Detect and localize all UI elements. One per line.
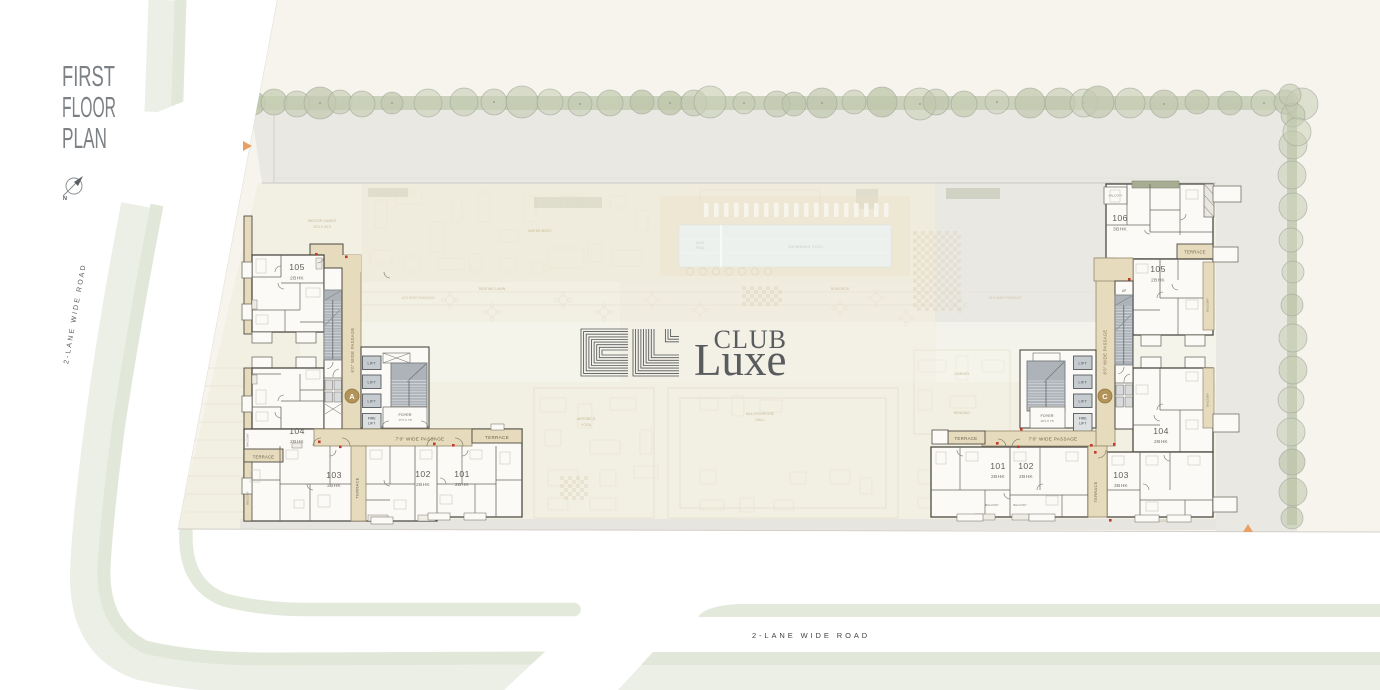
svg-text:101: 101 bbox=[454, 469, 470, 479]
svg-text:PLAN: PLAN bbox=[62, 123, 107, 155]
svg-text:10'4 X 7'8: 10'4 X 7'8 bbox=[1040, 419, 1054, 423]
svg-text:2BHK: 2BHK bbox=[455, 482, 469, 488]
svg-text:LIFT: LIFT bbox=[368, 380, 377, 384]
svg-text:BALCONY: BALCONY bbox=[246, 433, 250, 447]
svg-text:105: 105 bbox=[1150, 264, 1166, 274]
svg-text:SEATING LAWN: SEATING LAWN bbox=[479, 287, 506, 291]
svg-text:2BHK: 2BHK bbox=[290, 276, 304, 282]
svg-text:BALCONY: BALCONY bbox=[1109, 194, 1123, 198]
svg-text:101: 101 bbox=[990, 461, 1006, 471]
svg-text:WATER BODY: WATER BODY bbox=[528, 229, 552, 233]
svg-text:10'0 WIDE PASSAGE: 10'0 WIDE PASSAGE bbox=[989, 296, 1023, 300]
svg-text:INDOOR GAMES: INDOOR GAMES bbox=[308, 219, 337, 223]
svg-text:2BHK: 2BHK bbox=[1151, 278, 1165, 284]
svg-text:8'0" WIDE PASSAGE: 8'0" WIDE PASSAGE bbox=[1103, 329, 1108, 374]
svg-text:TERRACE: TERRACE bbox=[954, 436, 977, 441]
svg-text:FOYER: FOYER bbox=[398, 413, 411, 417]
svg-text:TERRACE: TERRACE bbox=[253, 455, 274, 460]
svg-text:TERRACE: TERRACE bbox=[1184, 250, 1205, 255]
svg-text:BALCONY: BALCONY bbox=[1013, 503, 1027, 507]
svg-text:102: 102 bbox=[1018, 461, 1034, 471]
svg-text:104: 104 bbox=[1153, 426, 1169, 436]
svg-text:LIBRARY: LIBRARY bbox=[954, 372, 970, 376]
svg-text:106: 106 bbox=[1112, 213, 1128, 223]
svg-text:MULTIPURPOSE: MULTIPURPOSE bbox=[746, 412, 775, 416]
svg-text:BALCONY: BALCONY bbox=[1206, 393, 1210, 407]
svg-text:LIFT: LIFT bbox=[1079, 399, 1088, 403]
svg-text:HALL: HALL bbox=[756, 418, 765, 422]
svg-text:103: 103 bbox=[1113, 470, 1129, 480]
svg-text:2-LANE WIDE ROAD: 2-LANE WIDE ROAD bbox=[752, 631, 870, 640]
svg-text:3BHK: 3BHK bbox=[1113, 227, 1127, 233]
svg-text:3BHK: 3BHK bbox=[327, 483, 341, 489]
svg-text:YOGA: YOGA bbox=[581, 423, 592, 427]
svg-text:C: C bbox=[1102, 392, 1108, 401]
svg-text:2BHK: 2BHK bbox=[991, 474, 1005, 480]
svg-text:BALCONY: BALCONY bbox=[1206, 298, 1210, 312]
svg-text:2BHK: 2BHK bbox=[1019, 474, 1033, 480]
svg-text:7'0" WIDE PASSAGE: 7'0" WIDE PASSAGE bbox=[1029, 437, 1078, 442]
svg-text:2BHK: 2BHK bbox=[290, 439, 304, 445]
svg-text:7'0" WIDE PASSAGE: 7'0" WIDE PASSAGE bbox=[396, 437, 445, 442]
svg-text:LIFT: LIFT bbox=[1079, 361, 1088, 365]
svg-text:UP: UP bbox=[1122, 289, 1126, 293]
svg-text:TERRACE: TERRACE bbox=[1093, 481, 1098, 502]
svg-text:FIRE: FIRE bbox=[1079, 416, 1088, 420]
svg-text:TERRACE: TERRACE bbox=[485, 435, 509, 440]
svg-text:BALCONY: BALCONY bbox=[985, 503, 999, 507]
svg-text:105: 105 bbox=[289, 262, 305, 272]
svg-text:FOYER: FOYER bbox=[1040, 414, 1053, 418]
svg-text:KIDS: KIDS bbox=[696, 241, 703, 245]
svg-text:LIFT: LIFT bbox=[368, 361, 377, 365]
svg-text:17'0 X 7'8: 17'0 X 7'8 bbox=[398, 418, 412, 422]
svg-text:FLOOR: FLOOR bbox=[62, 92, 116, 124]
svg-text:LIFT: LIFT bbox=[1079, 380, 1088, 384]
svg-text:LIFT: LIFT bbox=[1079, 421, 1087, 425]
svg-text:READING: READING bbox=[954, 411, 971, 415]
svg-text:10'0 WIDE PASSAGE: 10'0 WIDE PASSAGE bbox=[402, 296, 436, 300]
svg-text:FIRST: FIRST bbox=[62, 61, 115, 93]
svg-text:6'0" WIDE PASSAGE: 6'0" WIDE PASSAGE bbox=[350, 327, 355, 372]
svg-text:23'0 X 40'0: 23'0 X 40'0 bbox=[313, 225, 331, 229]
svg-text:3BHK: 3BHK bbox=[1114, 483, 1128, 489]
svg-text:AEROBICS: AEROBICS bbox=[577, 417, 596, 421]
svg-text:TERRACE: TERRACE bbox=[355, 477, 360, 498]
svg-text:2BHK: 2BHK bbox=[416, 482, 430, 488]
svg-text:LIFT: LIFT bbox=[368, 421, 376, 425]
svg-text:SUN DECK: SUN DECK bbox=[831, 287, 850, 291]
svg-text:FIRE: FIRE bbox=[368, 416, 377, 420]
svg-text:102: 102 bbox=[415, 469, 431, 479]
svg-text:BALCONY: BALCONY bbox=[246, 491, 250, 505]
svg-text:SWIMMING POOL: SWIMMING POOL bbox=[788, 245, 824, 249]
svg-text:2BHK: 2BHK bbox=[1154, 439, 1168, 445]
svg-text:104: 104 bbox=[289, 426, 305, 436]
svg-text:N: N bbox=[63, 196, 67, 202]
svg-text:A: A bbox=[349, 392, 355, 401]
svg-text:103: 103 bbox=[326, 470, 342, 480]
svg-text:POOL: POOL bbox=[696, 246, 705, 250]
svg-text:LIFT: LIFT bbox=[368, 399, 377, 403]
svg-text:Luxe: Luxe bbox=[694, 335, 786, 385]
